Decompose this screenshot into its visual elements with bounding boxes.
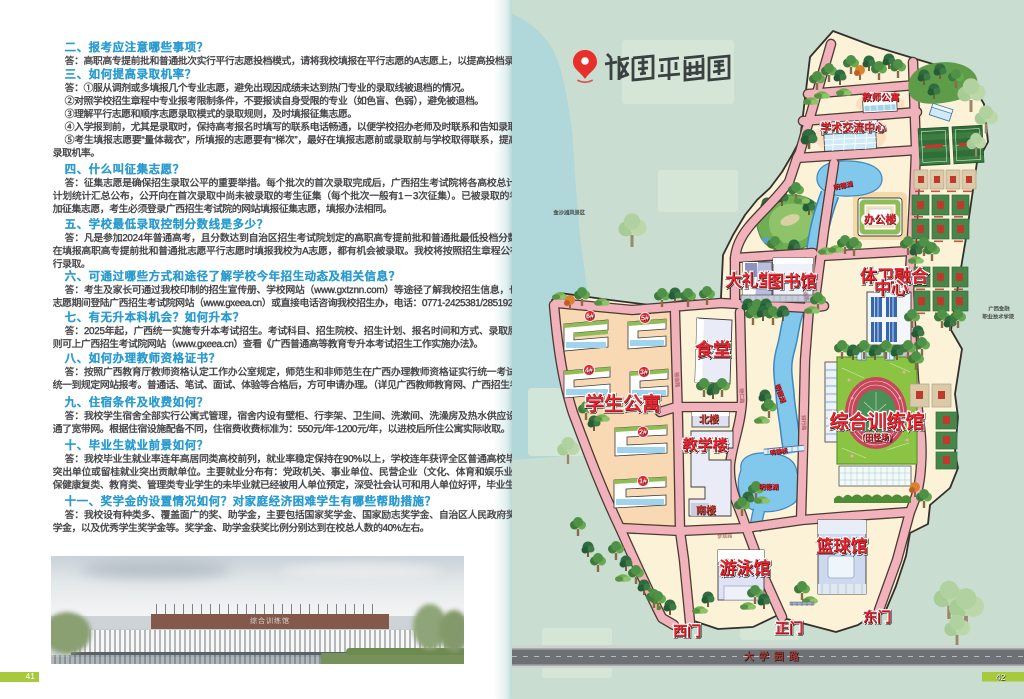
- svg-text:西门: 西门: [673, 623, 701, 639]
- svg-text:南楼: 南楼: [696, 504, 716, 517]
- svg-text:6#: 6#: [586, 314, 594, 321]
- svg-text:教师公寓: 教师公寓: [861, 92, 899, 103]
- svg-text:42: 42: [996, 672, 1006, 682]
- svg-text:职业技术学院: 职业技术学院: [982, 312, 1014, 320]
- svg-text:图书馆: 图书馆: [767, 272, 816, 291]
- svg-text:(田径场): (田径场): [862, 432, 892, 442]
- svg-text:食堂: 食堂: [694, 339, 731, 360]
- svg-text:学术交流中心: 学术交流中心: [820, 120, 885, 134]
- svg-text:4#: 4#: [585, 368, 593, 375]
- svg-text:梦成路: 梦成路: [717, 532, 732, 540]
- svg-text:知行路: 知行路: [800, 415, 808, 430]
- svg-text:明德湖: 明德湖: [759, 482, 779, 491]
- svg-text:大学园路: 大学园路: [744, 650, 804, 663]
- svg-text:学生公寓: 学生公寓: [585, 392, 661, 415]
- svg-text:篮球馆: 篮球馆: [816, 536, 868, 556]
- svg-text:3#: 3#: [640, 370, 648, 377]
- svg-text:北楼: 北楼: [699, 413, 719, 426]
- svg-text:5#: 5#: [641, 316, 649, 323]
- svg-text:办公楼: 办公楼: [864, 213, 896, 226]
- svg-text:东门: 东门: [863, 609, 891, 625]
- svg-text:教学楼: 教学楼: [681, 436, 727, 454]
- svg-text:1#: 1#: [639, 479, 647, 486]
- svg-text:广西金融: 广西金融: [988, 304, 1010, 312]
- svg-text:综合训练馆: 综合训练馆: [829, 410, 924, 433]
- svg-text:中心: 中心: [874, 278, 908, 298]
- svg-text:游泳馆: 游泳馆: [720, 558, 771, 578]
- svg-text:德仁路: 德仁路: [738, 388, 746, 403]
- svg-text:金沙湖风景区: 金沙湖风景区: [553, 208, 585, 216]
- svg-text:德信路: 德信路: [673, 372, 681, 388]
- svg-text:正门: 正门: [775, 620, 803, 636]
- svg-text:2#: 2#: [639, 430, 647, 437]
